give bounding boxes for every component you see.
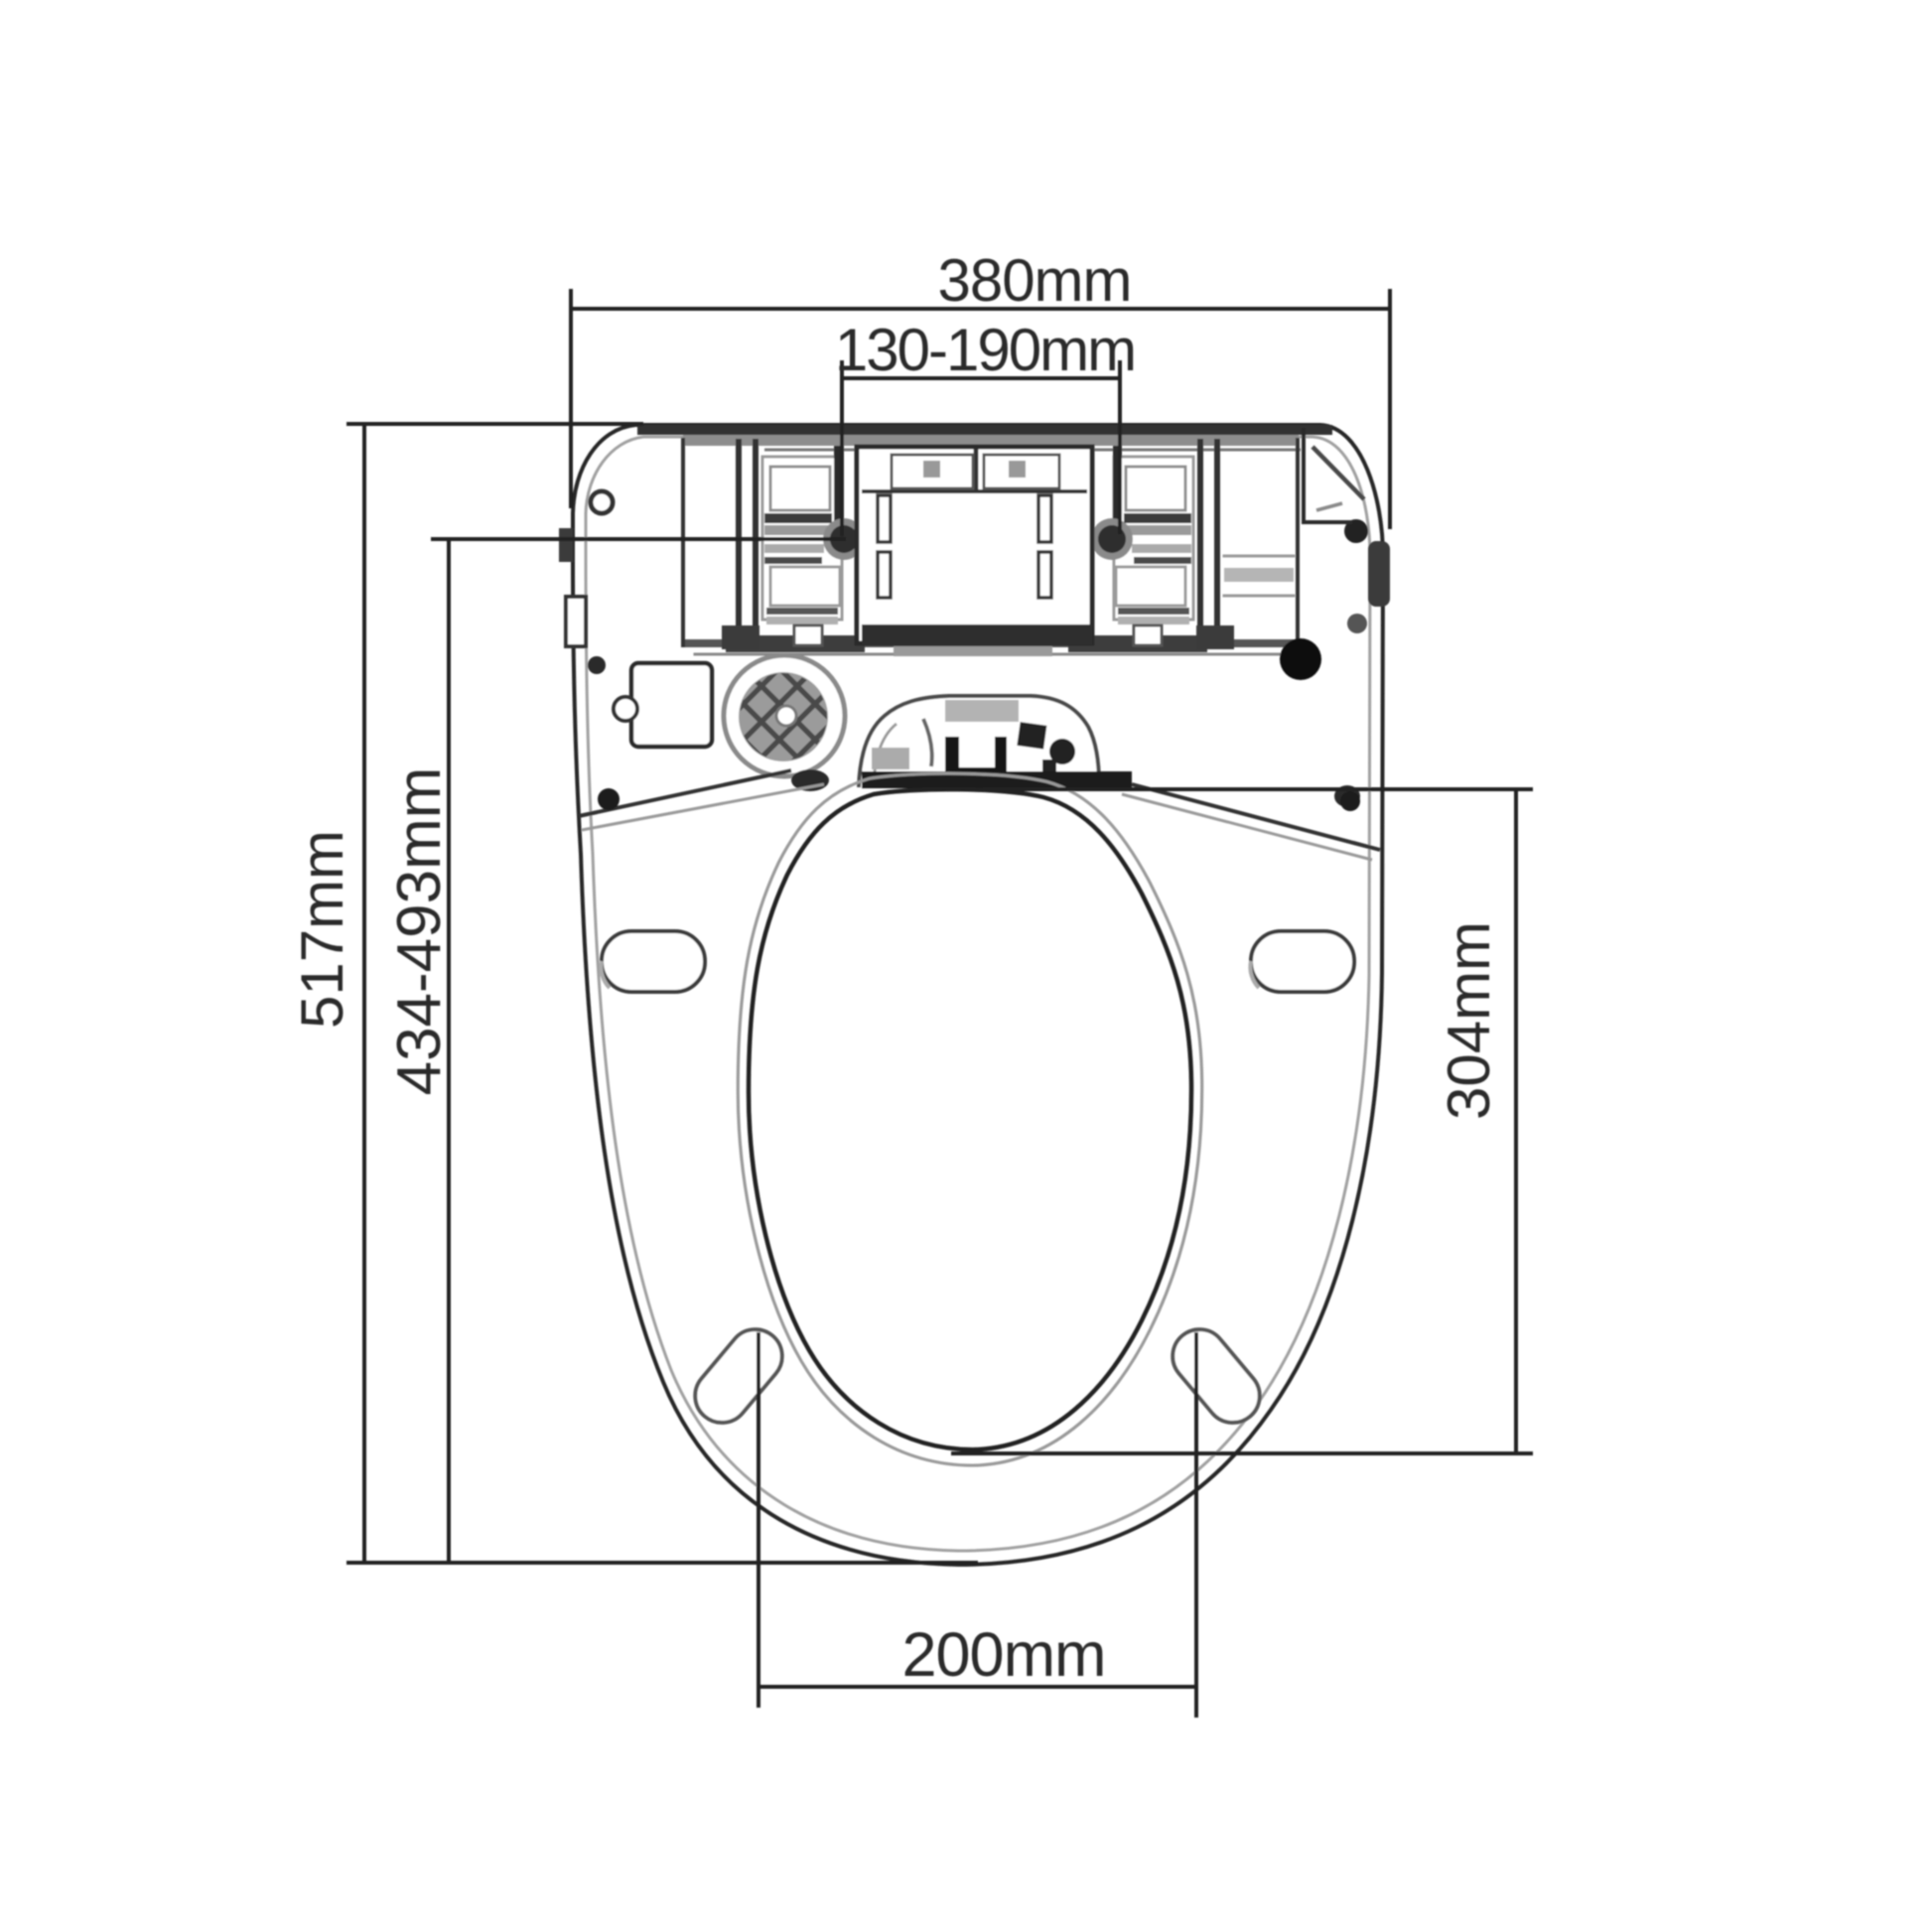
svg-text:434-493mm: 434-493mm (385, 767, 454, 1096)
svg-text:304mm: 304mm (1436, 921, 1502, 1120)
svg-text:380mm: 380mm (937, 247, 1131, 314)
svg-text:517mm: 517mm (289, 830, 355, 1029)
svg-text:130-190mm: 130-190mm (835, 317, 1135, 383)
svg-text:200mm: 200mm (901, 1620, 1105, 1690)
